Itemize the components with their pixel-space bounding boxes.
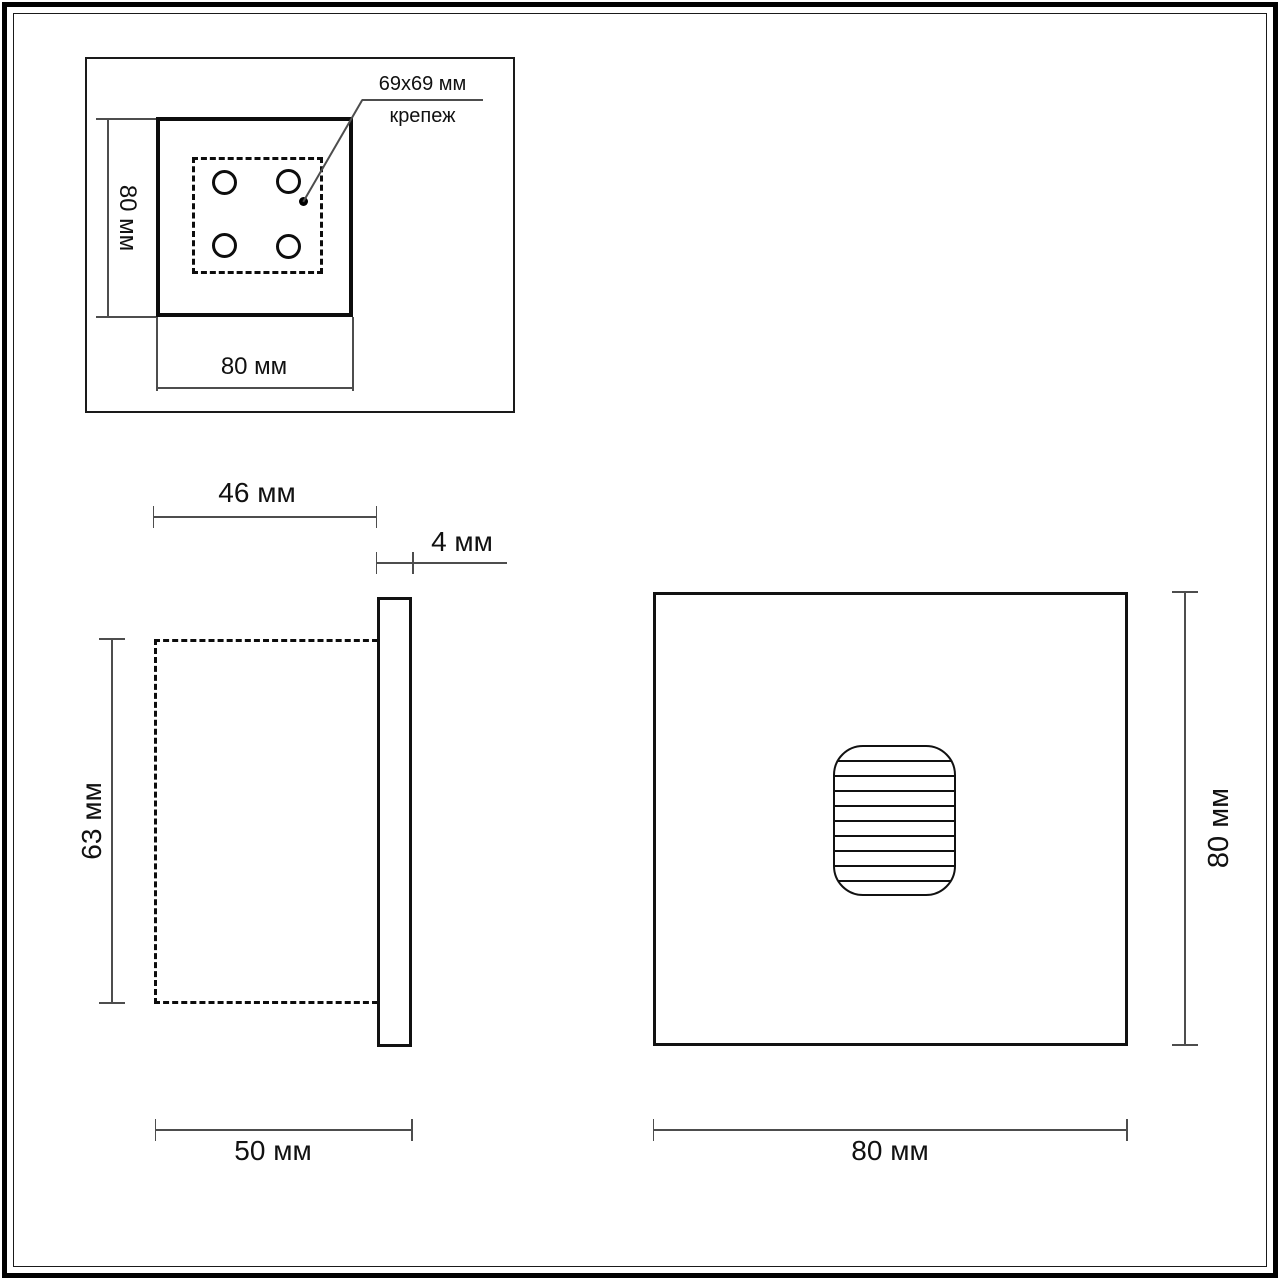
annotation-underline (362, 99, 483, 101)
extension-line (352, 317, 354, 391)
drawing-page: 69x69 мм крепеж 80 мм 80 мм 46 мм 4 мм 6… (0, 0, 1280, 1280)
top-view-height-label: 80 мм (113, 163, 141, 273)
side-view-recessed-body (154, 639, 378, 1004)
annotation-name-label: крепеж (356, 104, 489, 128)
extension-line (96, 316, 156, 318)
front-view-width-label: 80 мм (830, 1136, 950, 1166)
dimension-line-vertical (107, 118, 109, 317)
dimension-line-horizontal (156, 387, 353, 389)
side-view-body-depth-label: 46 мм (197, 478, 317, 508)
dimension-tick (1126, 1119, 1128, 1141)
annotation-size-label: 69x69 мм (356, 72, 489, 96)
side-view-plate-thickness-label: 4 мм (402, 527, 522, 557)
dimension-tick (155, 1119, 157, 1141)
mounting-outline-dashed (192, 157, 323, 274)
dimension-tick (411, 1119, 413, 1141)
side-view-body-height-label: 63 мм (77, 761, 107, 881)
dimension-tick (653, 1119, 655, 1141)
dimension-line-horizontal (155, 1129, 412, 1131)
front-view-height-label: 80 мм (1204, 763, 1236, 893)
dimension-line-horizontal (653, 1129, 1127, 1131)
dimension-line-horizontal (376, 562, 507, 564)
dimension-line-horizontal (153, 516, 377, 518)
dimension-tick (412, 552, 414, 574)
dimension-tick (376, 552, 378, 574)
top-view-width-label: 80 мм (194, 353, 314, 381)
side-view-total-depth-label: 50 мм (213, 1136, 333, 1166)
mounting-hole (276, 234, 301, 259)
mounting-hole (212, 170, 237, 195)
dimension-tick (153, 506, 155, 528)
mounting-hole (276, 169, 301, 194)
side-view-faceplate (377, 597, 412, 1047)
extension-line (156, 317, 158, 391)
front-view-grille (833, 745, 956, 896)
dimension-tick (376, 506, 378, 528)
extension-line (96, 118, 156, 120)
dimension-line-vertical (111, 639, 113, 1004)
dimension-line-vertical (1184, 592, 1186, 1046)
mounting-hole (212, 233, 237, 258)
